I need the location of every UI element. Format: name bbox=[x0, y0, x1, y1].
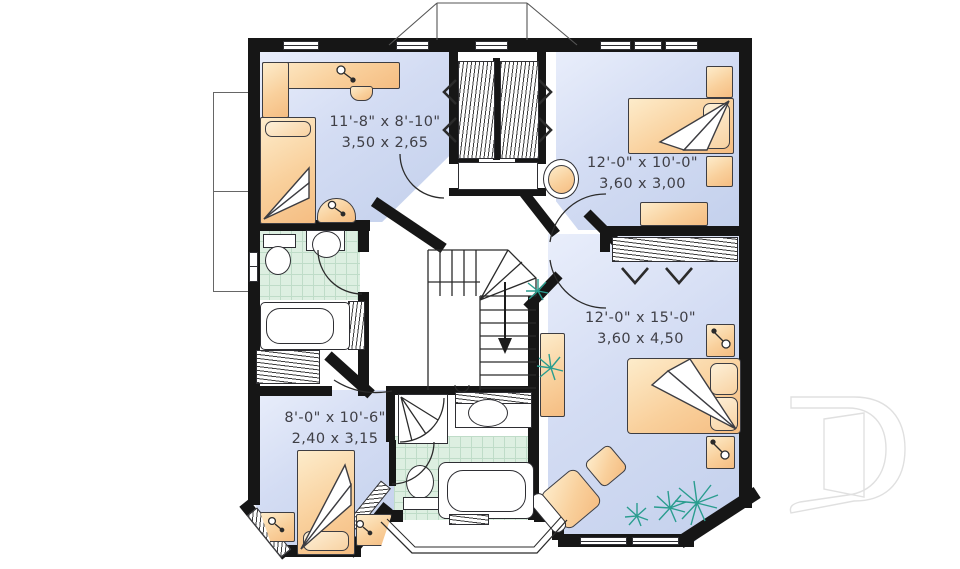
lamp-icon-table-left bbox=[269, 518, 284, 532]
plant-icon-small bbox=[625, 503, 648, 526]
linework-overlay bbox=[0, 0, 960, 569]
bay-window-outline bbox=[381, 517, 567, 553]
label-bedroom-top-right: 12'-0" x 10'-0" 3,60 x 3,00 bbox=[560, 153, 725, 195]
lamp-icon-table-right bbox=[357, 521, 372, 535]
label-bedroom-right: 12'-0" x 15'-0" 3,60 x 4,50 bbox=[558, 308, 723, 350]
bed-fold-1 bbox=[264, 168, 309, 219]
door-arc-bedroom4 bbox=[550, 260, 606, 308]
dimension-imperial: 12'-0" x 15'-0" bbox=[585, 310, 696, 326]
plant-icon-medium bbox=[654, 491, 686, 522]
bed-fold-2 bbox=[660, 101, 729, 150]
plant-icon-shelf bbox=[537, 354, 563, 380]
door-arc-bedroom3 bbox=[334, 380, 392, 393]
label-bedroom-bottom-left: 8'-0" x 10'-6" 2,40 x 3,15 bbox=[255, 408, 415, 450]
door-arc-bedroom1 bbox=[400, 154, 444, 198]
dimension-imperial: 8'-0" x 10'-6" bbox=[284, 410, 385, 426]
dimension-metric: 2,40 x 3,15 bbox=[292, 431, 379, 447]
door-arc-bedroom2 bbox=[550, 194, 606, 242]
floor-plan: 11'-8" x 8'-10" 3,50 x 2,65 12'-0" x 10'… bbox=[0, 0, 960, 569]
dimension-metric: 3,60 x 3,00 bbox=[599, 176, 686, 192]
bed-fold-double bbox=[652, 359, 736, 429]
dormer-outline bbox=[389, 3, 577, 45]
dimension-metric: 3,60 x 4,50 bbox=[597, 331, 684, 347]
label-bedroom-top-left: 11'-8" x 8'-10" 3,50 x 2,65 bbox=[305, 112, 465, 154]
door-arc-bathroom1 bbox=[318, 250, 362, 294]
lamp-icon-nightstand4 bbox=[711, 440, 729, 459]
lamp-icon-chair bbox=[328, 201, 344, 215]
watermark-d-logo bbox=[790, 397, 905, 513]
dimension-imperial: 11'-8" x 8'-10" bbox=[330, 114, 441, 130]
staircase bbox=[428, 250, 536, 392]
bed-fold-3 bbox=[301, 465, 351, 549]
plant-icon-hall bbox=[526, 279, 548, 300]
lamp-icon-desk bbox=[337, 66, 355, 82]
dimension-metric: 3,50 x 2,65 bbox=[342, 135, 429, 151]
dimension-imperial: 12'-0" x 10'-0" bbox=[587, 155, 698, 171]
